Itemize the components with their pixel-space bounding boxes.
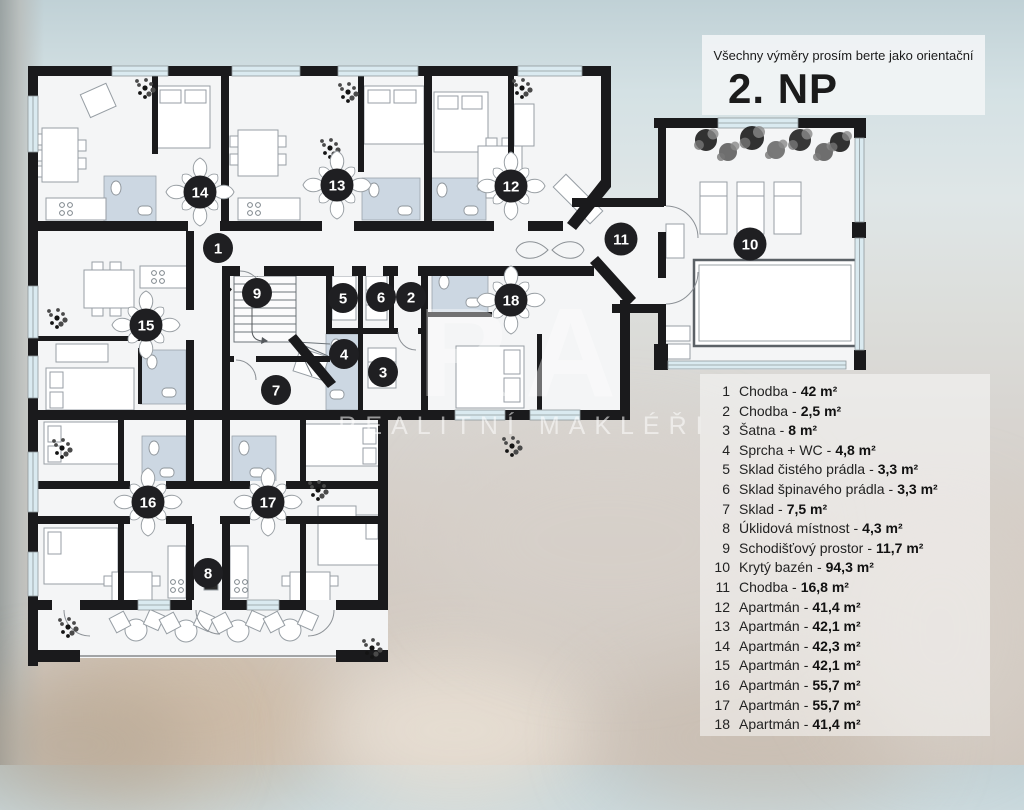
room-number: 5: [339, 290, 347, 307]
legend-item-number: 3: [700, 422, 730, 438]
room-number: 9: [253, 285, 261, 302]
legend-item: 13Apartmán-42,1 m²: [700, 618, 990, 638]
header-panel: Všechny výměry prosím berte jako orienta…: [702, 35, 985, 115]
legend-item-number: 16: [700, 677, 730, 693]
legend-panel: 1Chodba-42 m²2Chodba-2,5 m²3Šatna-8 m²4S…: [700, 374, 990, 736]
legend-item-number: 9: [700, 540, 730, 556]
legend-item: 12Apartmán-41,4 m²: [700, 599, 990, 619]
legend-item-separator: -: [804, 638, 809, 654]
legend-item-area: 42,1 m²: [812, 618, 860, 634]
legend-item-separator: -: [804, 618, 809, 634]
legend-item-area: 16,8 m²: [801, 579, 849, 595]
legend-item-area: 55,7 m²: [812, 677, 860, 693]
room-number: 14: [192, 184, 209, 201]
legend-item: 7Sklad-7,5 m²: [700, 501, 990, 521]
legend-item-number: 11: [700, 579, 730, 595]
legend-item: 5Sklad čistého prádla-3,3 m²: [700, 461, 990, 481]
room-marker: 3: [368, 357, 398, 387]
room-marker: 6: [366, 282, 396, 312]
legend-item: 8Úklidová místnost-4,3 m²: [700, 520, 990, 540]
room-marker: 4: [329, 339, 359, 369]
room-number: 7: [272, 382, 280, 399]
legend-item-label: Chodba: [739, 403, 788, 419]
legend-item-separator: -: [804, 677, 809, 693]
room-marker: 11: [605, 223, 638, 256]
legend-item-label: Apartmán: [739, 716, 800, 732]
legend-item-separator: -: [804, 599, 809, 615]
legend-item: 18Apartmán-41,4 m²: [700, 716, 990, 736]
legend-item: 11Chodba-16,8 m²: [700, 579, 990, 599]
legend-item: 2Chodba-2,5 m²: [700, 403, 990, 423]
legend-item-number: 7: [700, 501, 730, 517]
legend-item-area: 55,7 m²: [812, 697, 860, 713]
room-number: 17: [260, 494, 277, 511]
room-number: 4: [340, 346, 349, 363]
legend-item-number: 18: [700, 716, 730, 732]
room-number: 1: [214, 240, 222, 257]
legend-item-label: Sklad špinavého prádla: [739, 481, 885, 497]
legend-item-separator: -: [780, 422, 785, 438]
legend-item-number: 2: [700, 403, 730, 419]
legend-item-area: 3,3 m²: [897, 481, 937, 497]
legend-item-separator: -: [817, 559, 822, 575]
legend-item-area: 2,5 m²: [801, 403, 841, 419]
legend-item-separator: -: [778, 501, 783, 517]
legend-item-label: Apartmán: [739, 599, 800, 615]
legend-item-label: Sklad čistého prádla: [739, 461, 865, 477]
room-number: 3: [379, 364, 387, 381]
legend-item-separator: -: [804, 716, 809, 732]
legend-item-number: 12: [700, 599, 730, 615]
legend-item-label: Úklidová místnost: [739, 520, 849, 536]
legend-item-number: 8: [700, 520, 730, 536]
room-number: 15: [138, 317, 155, 334]
room-marker: 10: [734, 228, 767, 261]
legend-item-number: 15: [700, 657, 730, 673]
legend-item: 14Apartmán-42,3 m²: [700, 638, 990, 658]
legend-item: 1Chodba-42 m²: [700, 383, 990, 403]
legend-item-number: 10: [700, 559, 730, 575]
room-marker: 7: [261, 375, 291, 405]
legend-item-area: 4,3 m²: [862, 520, 902, 536]
legend-item: 17Apartmán-55,7 m²: [700, 697, 990, 717]
floor-title: 2. NP: [728, 65, 985, 113]
legend-item-number: 6: [700, 481, 730, 497]
legend-item: 6Sklad špinavého prádla-3,3 m²: [700, 481, 990, 501]
legend-item-label: Sprcha + WC: [739, 442, 823, 458]
room-marker: 9: [242, 278, 272, 308]
room-number: 6: [377, 289, 385, 306]
legend-item-separator: -: [869, 461, 874, 477]
legend-item-area: 8 m²: [788, 422, 817, 438]
legend-item-separator: -: [853, 520, 858, 536]
legend-item-number: 13: [700, 618, 730, 634]
legend-item-label: Apartmán: [739, 697, 800, 713]
legend-item: 9Schodišťový prostor-11,7 m²: [700, 540, 990, 560]
swimming-pool: [694, 260, 856, 346]
room-number: 8: [204, 565, 212, 582]
room-number: 13: [329, 177, 346, 194]
legend-item-area: 41,4 m²: [812, 599, 860, 615]
legend-item-separator: -: [792, 383, 797, 399]
legend-item: 10Krytý bazén-94,3 m²: [700, 559, 990, 579]
legend-item-area: 94,3 m²: [826, 559, 874, 575]
legend-item-area: 42,3 m²: [812, 638, 860, 654]
legend-item-area: 4,8 m²: [835, 442, 875, 458]
legend-item-separator: -: [792, 579, 797, 595]
room-number: 16: [140, 494, 157, 511]
legend-item-area: 41,4 m²: [812, 716, 860, 732]
room-number: 18: [503, 292, 520, 309]
legend-item-number: 4: [700, 442, 730, 458]
legend-item-separator: -: [889, 481, 894, 497]
legend-rows: 1Chodba-42 m²2Chodba-2,5 m²3Šatna-8 m²4S…: [700, 383, 990, 736]
pool-lounger: [700, 182, 801, 234]
legend-item-label: Apartmán: [739, 657, 800, 673]
legend-item-separator: -: [804, 697, 809, 713]
legend-item-number: 14: [700, 638, 730, 654]
legend-item-separator: -: [867, 540, 872, 556]
room-number: 2: [407, 289, 415, 306]
legend-item-label: Šatna: [739, 422, 776, 438]
room-number: 10: [742, 236, 759, 253]
legend-item-separator: -: [827, 442, 832, 458]
legend-item-number: 1: [700, 383, 730, 399]
legend-item-number: 17: [700, 697, 730, 713]
legend-item: 3Šatna-8 m²: [700, 422, 990, 442]
legend-item-label: Apartmán: [739, 638, 800, 654]
legend-item-area: 3,3 m²: [878, 461, 918, 477]
plant-icon: [502, 436, 523, 457]
legend-item-label: Apartmán: [739, 677, 800, 693]
legend-item-area: 42 m²: [801, 383, 838, 399]
legend-item-label: Schodišťový prostor: [739, 540, 863, 556]
legend-item: 16Apartmán-55,7 m²: [700, 677, 990, 697]
room-marker: 8: [193, 558, 223, 588]
legend-item-label: Chodba: [739, 383, 788, 399]
legend-item: 4Sprcha + WC-4,8 m²: [700, 442, 990, 462]
room-number: 11: [613, 231, 629, 248]
room-marker: 1: [203, 233, 233, 263]
legend-item-label: Chodba: [739, 579, 788, 595]
legend-item: 15Apartmán-42,1 m²: [700, 657, 990, 677]
page: { "header": { "disclaimer": "Všechny vým…: [0, 0, 1024, 765]
legend-item-area: 42,1 m²: [812, 657, 860, 673]
disclaimer-text: Všechny výměry prosím berte jako orienta…: [702, 48, 985, 63]
room-marker: 2: [396, 282, 426, 312]
legend-item-separator: -: [792, 403, 797, 419]
legend-item-number: 5: [700, 461, 730, 477]
legend-item-area: 7,5 m²: [787, 501, 827, 517]
room-number: 12: [503, 178, 520, 195]
legend-item-area: 11,7 m²: [876, 540, 923, 556]
legend-item-label: Krytý bazén: [739, 559, 813, 575]
legend-item-separator: -: [804, 657, 809, 673]
legend-item-label: Sklad: [739, 501, 774, 517]
room-marker: 5: [328, 283, 358, 313]
legend-item-label: Apartmán: [739, 618, 800, 634]
